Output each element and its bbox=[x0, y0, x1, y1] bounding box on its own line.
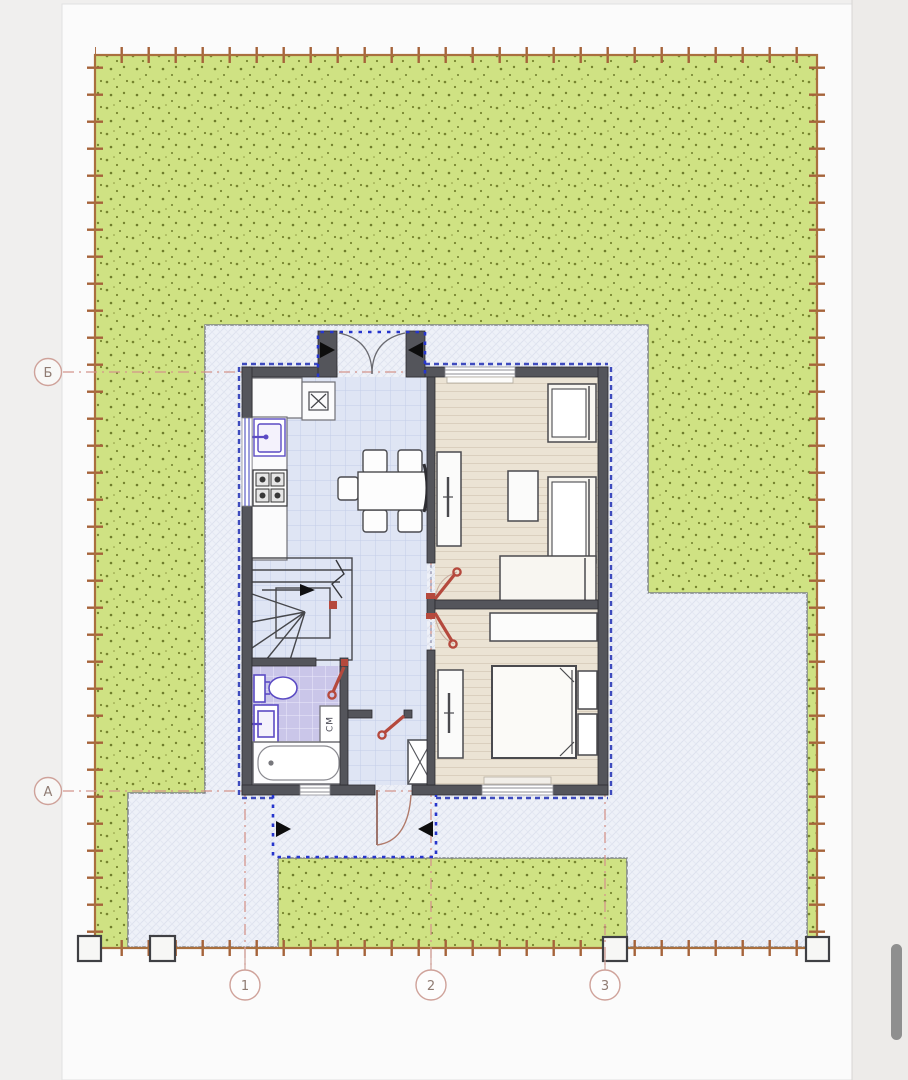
wardrobe bbox=[438, 670, 463, 758]
floor-plan-drawing: Б А 1 2 3 bbox=[0, 0, 908, 1080]
fence-post bbox=[150, 936, 175, 961]
wall bbox=[553, 785, 608, 795]
window-sill bbox=[447, 377, 513, 383]
axis-label-3: 3 bbox=[601, 979, 609, 994]
stove bbox=[253, 470, 287, 506]
chair bbox=[398, 450, 422, 473]
bathroom-wall bbox=[340, 666, 348, 785]
hall-stub-wall bbox=[404, 710, 412, 718]
window-bathroom-bottom bbox=[300, 785, 330, 795]
fence-post bbox=[806, 937, 829, 961]
nightstand bbox=[578, 714, 597, 755]
dining-table bbox=[358, 472, 427, 510]
bathroom-wall bbox=[252, 658, 316, 666]
bathtub bbox=[253, 742, 345, 784]
wall bbox=[515, 367, 608, 377]
fence-post bbox=[78, 936, 101, 961]
chair bbox=[338, 477, 358, 500]
window-kitchen-left bbox=[242, 418, 252, 506]
wall bbox=[242, 367, 252, 418]
bed bbox=[500, 556, 596, 602]
side-table bbox=[508, 471, 538, 521]
fence-post bbox=[603, 937, 627, 961]
viewer-side-panel bbox=[852, 0, 908, 1080]
wall bbox=[242, 506, 252, 795]
washing-machine-label: СМ bbox=[326, 716, 336, 732]
window-bedroom2-bottom bbox=[482, 785, 553, 795]
axis-label-b: Б bbox=[44, 366, 53, 381]
chair bbox=[363, 450, 387, 473]
stair-marker bbox=[329, 601, 337, 609]
partition-wall bbox=[427, 650, 435, 785]
dresser bbox=[490, 613, 597, 641]
bedroom-divider-wall bbox=[435, 600, 598, 609]
wall bbox=[412, 785, 482, 795]
nightstand bbox=[578, 671, 597, 709]
wall bbox=[242, 785, 300, 795]
axis-label-1: 1 bbox=[241, 979, 249, 994]
window-sill bbox=[484, 777, 551, 784]
wall bbox=[330, 785, 375, 795]
wall bbox=[598, 367, 608, 795]
toilet bbox=[254, 675, 297, 702]
axis-label-a: А bbox=[44, 785, 53, 800]
axis-label-2: 2 bbox=[427, 979, 435, 994]
floor-plan-canvas: Б А 1 2 3 bbox=[0, 0, 908, 1080]
partition-wall bbox=[427, 377, 435, 563]
hall-stub-wall bbox=[348, 710, 372, 718]
double-bed bbox=[492, 666, 576, 758]
window-bedroom1-top bbox=[445, 367, 515, 383]
kitchen-counter-top bbox=[252, 378, 302, 418]
chair bbox=[363, 510, 387, 532]
scrollbar-thumb[interactable] bbox=[891, 944, 902, 1040]
chair bbox=[398, 510, 422, 532]
